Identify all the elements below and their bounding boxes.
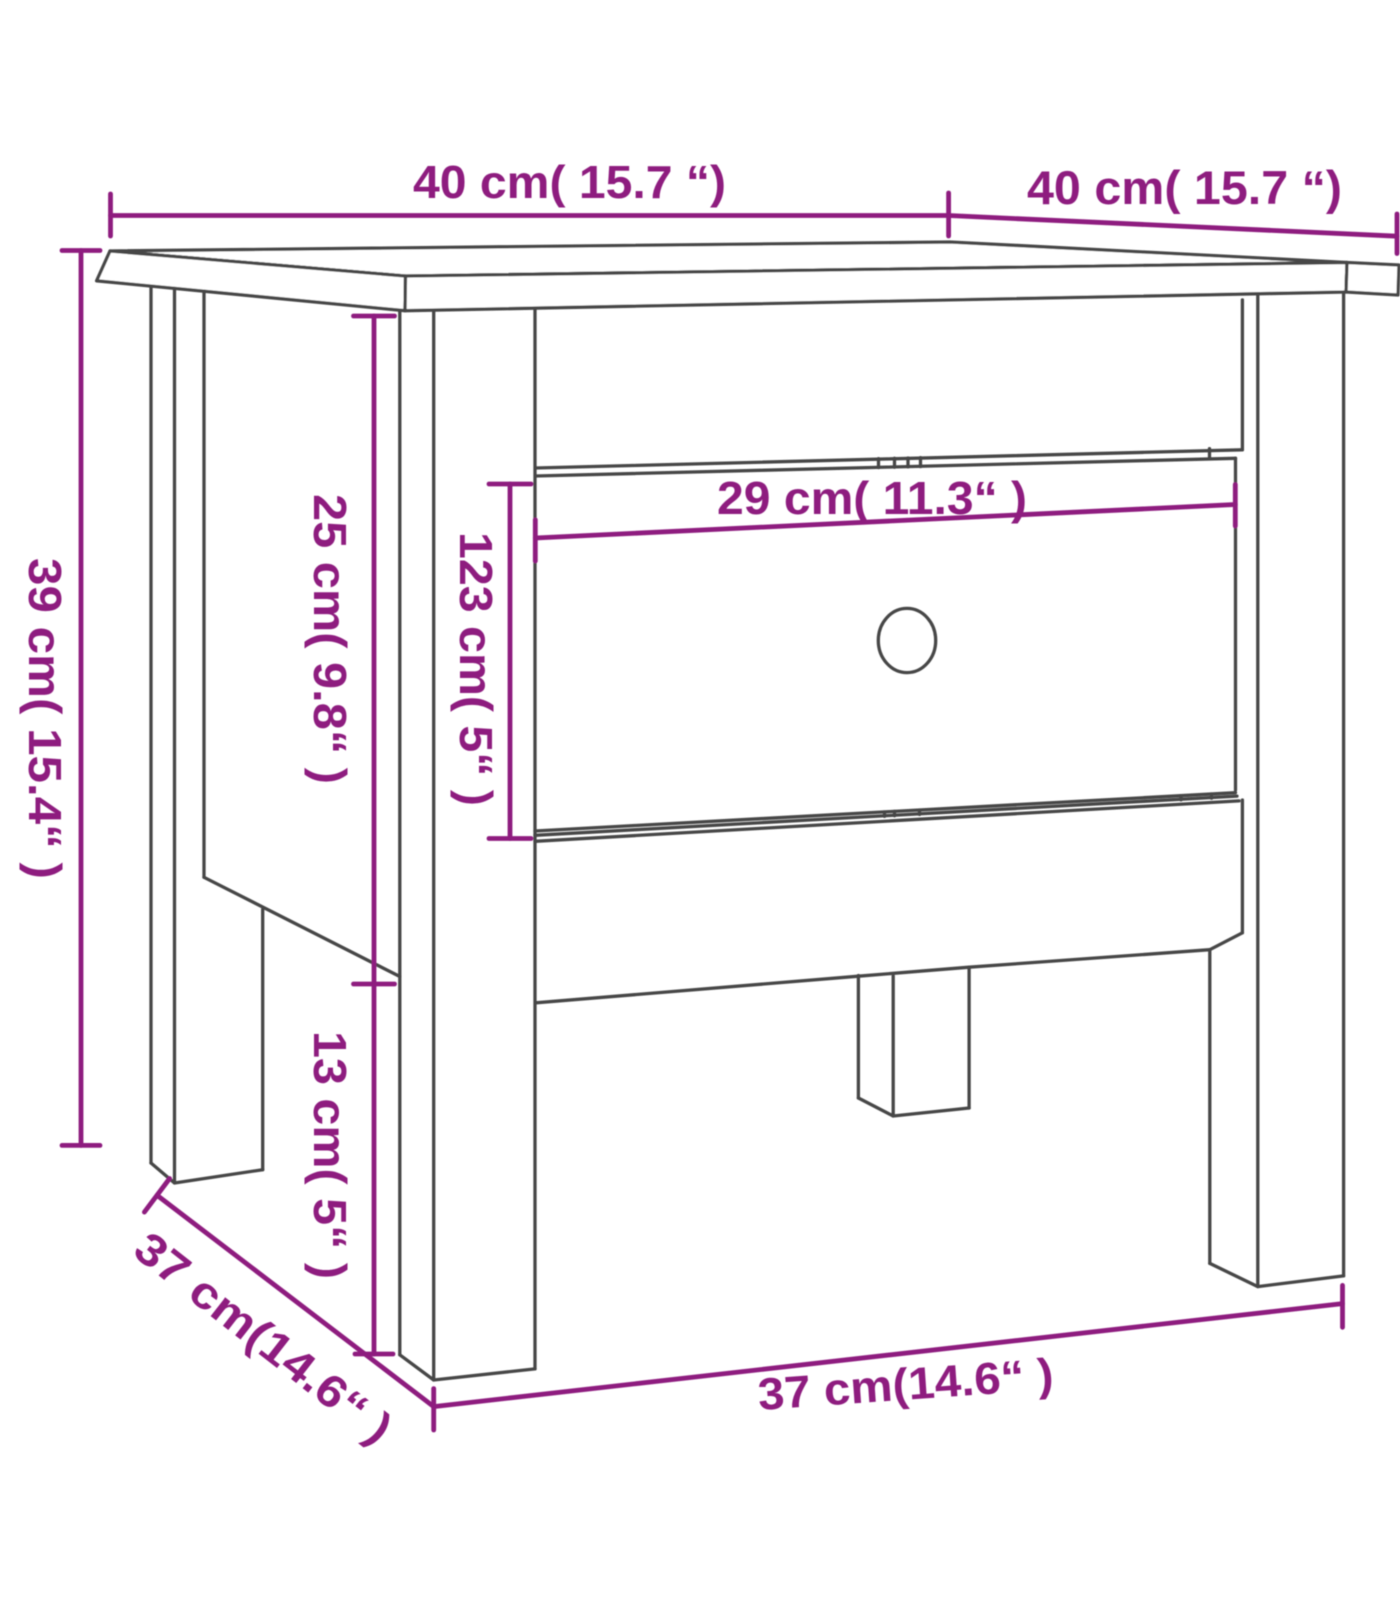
svg-text:40 cm( 15.7 “): 40 cm( 15.7 “) bbox=[1027, 161, 1342, 214]
svg-text:25 cm( 9.8“ ): 25 cm( 9.8“ ) bbox=[304, 494, 356, 784]
svg-text:123 cm( 5“ ): 123 cm( 5“ ) bbox=[450, 532, 502, 806]
svg-text:29 cm( 11.3“ ): 29 cm( 11.3“ ) bbox=[717, 472, 1027, 524]
svg-text:39 cm( 15.4“ ): 39 cm( 15.4“ ) bbox=[19, 558, 71, 879]
svg-text:40 cm( 15.7 “): 40 cm( 15.7 “) bbox=[413, 156, 726, 208]
svg-text:13 cm( 5“ ): 13 cm( 5“ ) bbox=[304, 1031, 356, 1279]
